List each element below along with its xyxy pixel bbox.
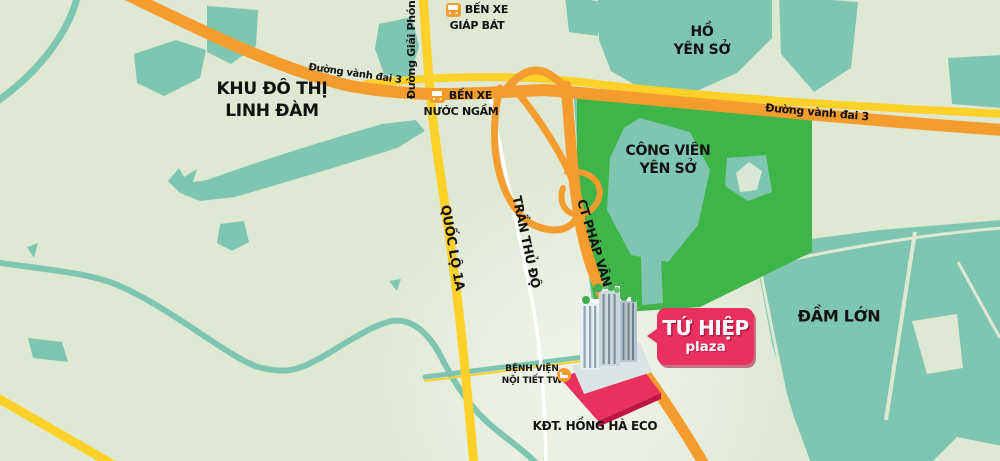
linh-dam-lake — [168, 120, 425, 201]
lake-blob — [779, 0, 858, 92]
poi-label: GIÁP BÁT — [441, 18, 513, 34]
lake-blob — [948, 55, 1000, 108]
lake-blob — [27, 243, 38, 258]
water-areas — [0, 0, 1000, 461]
poi-ben-xe-nuoc-ngam: BẾN XE NƯỚC NGẦM — [422, 88, 500, 120]
poi-label: BẾN XE — [465, 2, 508, 18]
project-badge: TỨ HIỆP plaza — [657, 308, 754, 365]
poi-ben-xe-giap-bat: BẾN XE GIÁP BÁT — [441, 2, 513, 34]
area-label-ho-yen-so: HỒ YÊN SỞ — [674, 23, 731, 59]
park-lake-channel — [641, 257, 663, 305]
poi-label: NƯỚC NGẦM — [422, 104, 500, 120]
lake-blob — [28, 338, 68, 362]
badge-title: TỨ HIỆP — [662, 318, 748, 338]
poi-label: BẾN XE — [449, 88, 492, 104]
lake-blob — [565, 0, 602, 36]
area-label-linh-dam: KHU ĐÔ THỊ LINH ĐÀM — [217, 78, 328, 122]
badge-subtitle: plaza — [685, 340, 725, 355]
lake-blob — [134, 40, 206, 96]
area-label-cong-vien-yen-so: CÔNG VIÊN YÊN SỞ — [626, 142, 711, 178]
area-label-dam-lon: ĐẦM LỚN — [798, 307, 881, 328]
lake-blob — [217, 221, 249, 251]
bus-icon — [446, 3, 461, 17]
poi-benh-vien-noi-tiet: BỆNH VIỆN NỘI TIẾT TW — [502, 363, 562, 387]
lake-blob — [389, 279, 401, 291]
area-label-kdt-hong-ha-eco: KĐT. HỒNG HÀ ECO — [533, 419, 658, 435]
road-bottom-left — [0, 397, 112, 461]
river-top-left — [0, 0, 78, 102]
map-artwork — [0, 0, 1000, 461]
bus-icon — [430, 89, 445, 103]
hospital-icon — [557, 368, 571, 382]
road-label-giai-phong: Đường Giải Phóng — [405, 0, 419, 99]
map-canvas: KHU ĐÔ THỊ LINH ĐÀM HỒ YÊN SỞ CÔNG VIÊN … — [0, 0, 1000, 461]
